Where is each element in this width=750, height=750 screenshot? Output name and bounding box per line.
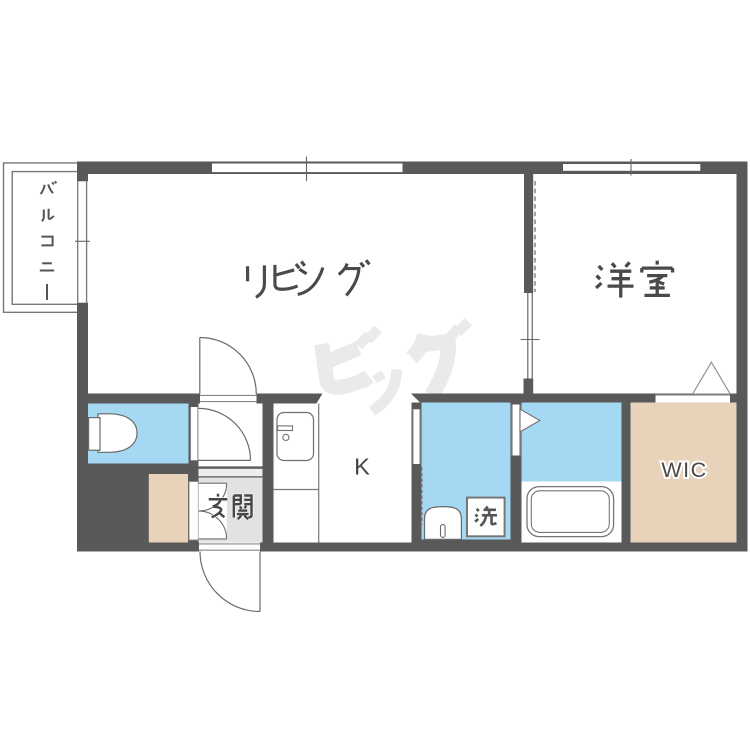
svg-text:K: K: [354, 454, 370, 480]
svg-text:WIC: WIC: [661, 458, 707, 482]
